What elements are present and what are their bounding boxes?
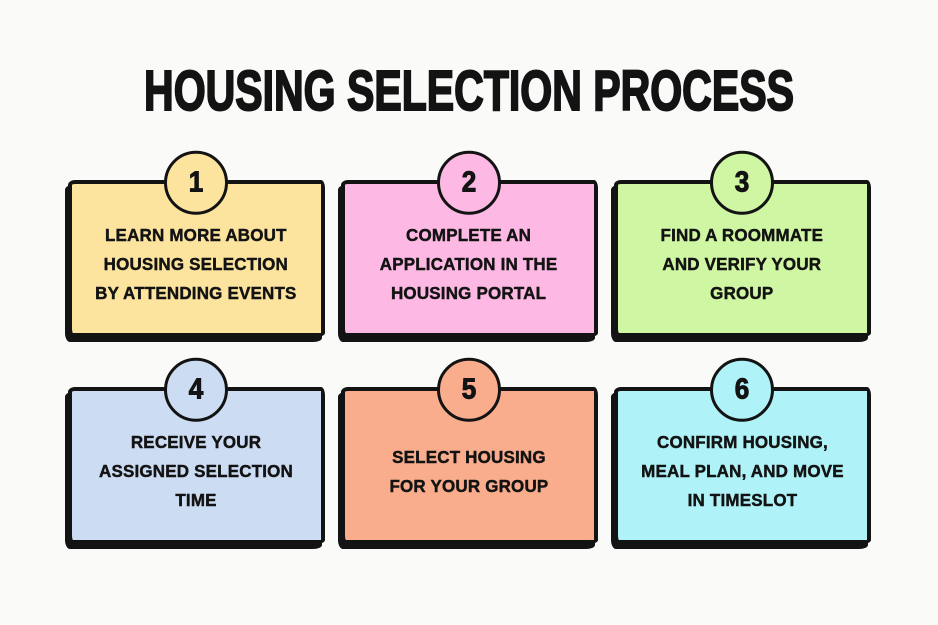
step-number-4: 4 <box>189 373 204 406</box>
step-label-3: FIND A ROOMMATE AND VERIFY YOUR GROUP <box>661 221 824 308</box>
step-number-badge-6: 6 <box>710 358 774 422</box>
step-card-1: 1 LEARN MORE ABOUT HOUSING SELECTION BY … <box>68 180 325 337</box>
step-number-5: 5 <box>462 373 477 406</box>
step-label-1: LEARN MORE ABOUT HOUSING SELECTION BY AT… <box>95 221 296 308</box>
steps-row-1: 1 LEARN MORE ABOUT HOUSING SELECTION BY … <box>0 180 938 337</box>
step-label-6: CONFIRM HOUSING, MEAL PLAN, AND MOVE IN … <box>641 428 844 515</box>
infographic-canvas: HOUSING SELECTION PROCESS 1 LEARN MORE A… <box>0 0 938 625</box>
step-card-5: 5 SELECT HOUSING FOR YOUR GROUP <box>341 387 598 544</box>
page-title: HOUSING SELECTION PROCESS <box>131 58 806 124</box>
step-label-2: COMPLETE AN APPLICATION IN THE HOUSING P… <box>380 221 558 308</box>
step-card-3: 3 FIND A ROOMMATE AND VERIFY YOUR GROUP <box>614 180 871 337</box>
step-number-badge-2: 2 <box>437 151 501 215</box>
step-number-2: 2 <box>462 166 477 199</box>
step-number-1: 1 <box>189 166 204 199</box>
step-number-badge-3: 3 <box>710 151 774 215</box>
step-label-5: SELECT HOUSING FOR YOUR GROUP <box>390 443 549 501</box>
step-card-6: 6 CONFIRM HOUSING, MEAL PLAN, AND MOVE I… <box>614 387 871 544</box>
step-number-6: 6 <box>735 373 750 406</box>
step-number-badge-4: 4 <box>164 358 228 422</box>
step-card-2: 2 COMPLETE AN APPLICATION IN THE HOUSING… <box>341 180 598 337</box>
step-number-badge-5: 5 <box>437 358 501 422</box>
step-label-4: RECEIVE YOUR ASSIGNED SELECTION TIME <box>99 428 293 515</box>
step-number-badge-1: 1 <box>164 151 228 215</box>
steps-row-2: 4 RECEIVE YOUR ASSIGNED SELECTION TIME 5… <box>0 387 938 544</box>
step-card-4: 4 RECEIVE YOUR ASSIGNED SELECTION TIME <box>68 387 325 544</box>
step-number-3: 3 <box>735 166 750 199</box>
